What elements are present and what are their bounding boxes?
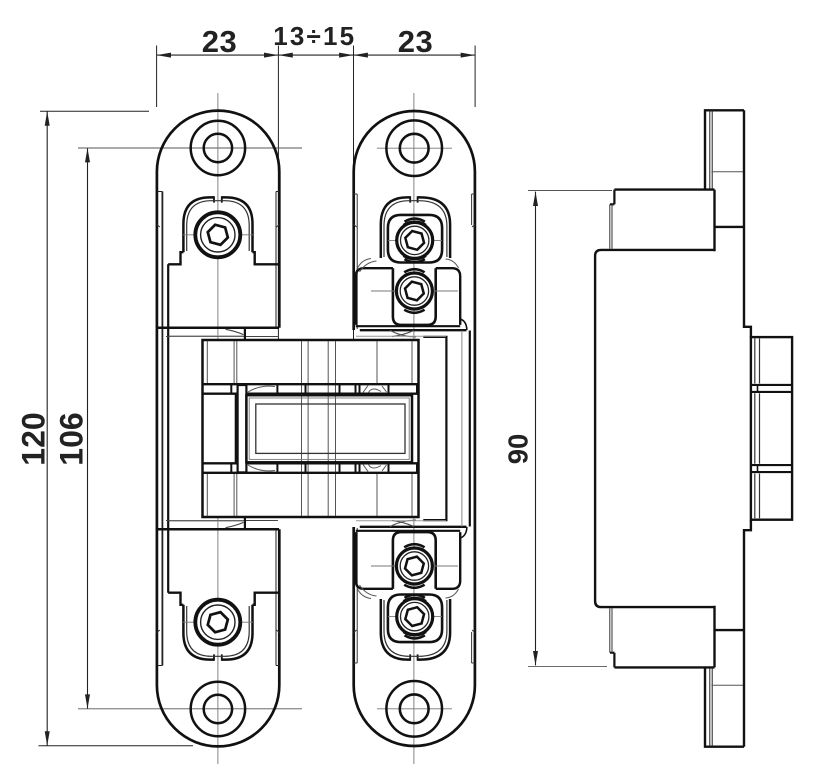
svg-text:106: 106: [54, 412, 90, 465]
svg-text:13÷15: 13÷15: [273, 21, 356, 51]
svg-text:120: 120: [15, 412, 51, 465]
svg-text:23: 23: [398, 24, 433, 59]
svg-text:23: 23: [202, 24, 237, 59]
svg-text:90: 90: [502, 434, 533, 465]
